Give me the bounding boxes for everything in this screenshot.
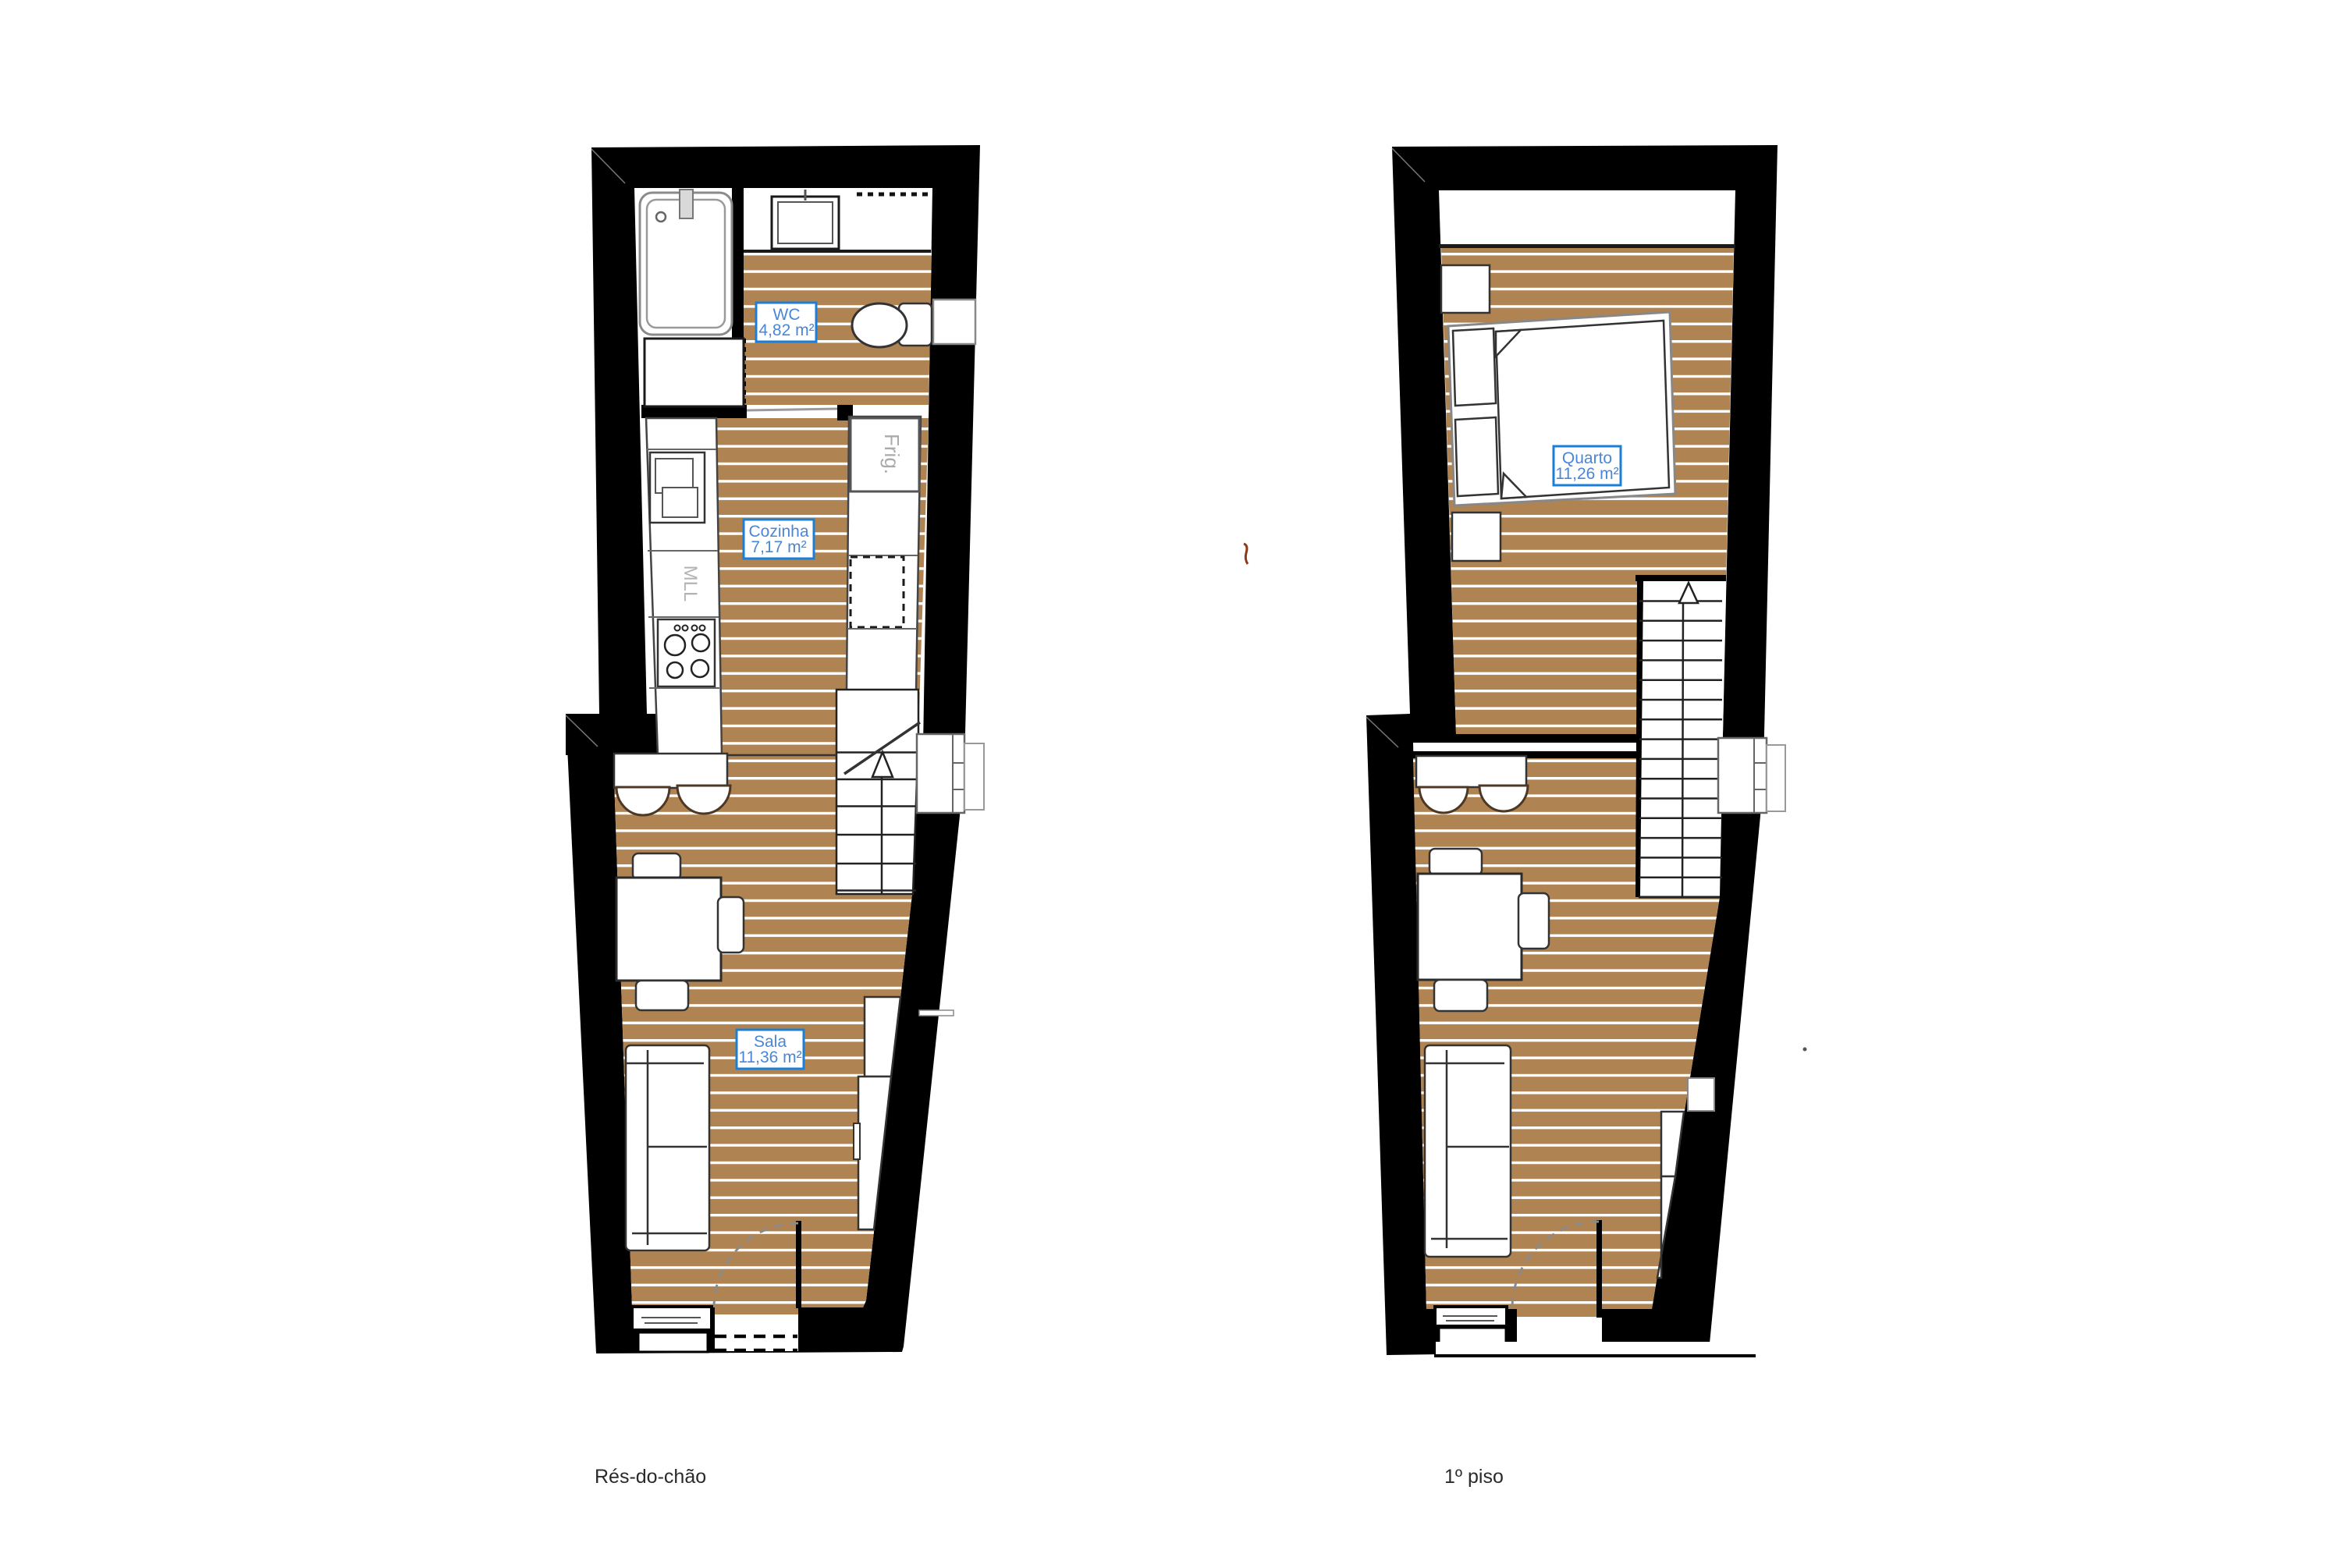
- svg-text:11,36 m²: 11,36 m²: [738, 1048, 801, 1066]
- svg-text:4,82 m²: 4,82 m²: [758, 321, 814, 339]
- svg-text:MLL: MLL: [680, 566, 701, 602]
- svg-text:Frig.: Frig.: [880, 434, 904, 474]
- svg-text:1º piso: 1º piso: [1444, 1466, 1504, 1488]
- svg-text:11,26 m²: 11,26 m²: [1555, 465, 1618, 483]
- svg-text:7,17 m²: 7,17 m²: [751, 538, 806, 556]
- svg-text:Rés-do-chão: Rés-do-chão: [595, 1466, 706, 1488]
